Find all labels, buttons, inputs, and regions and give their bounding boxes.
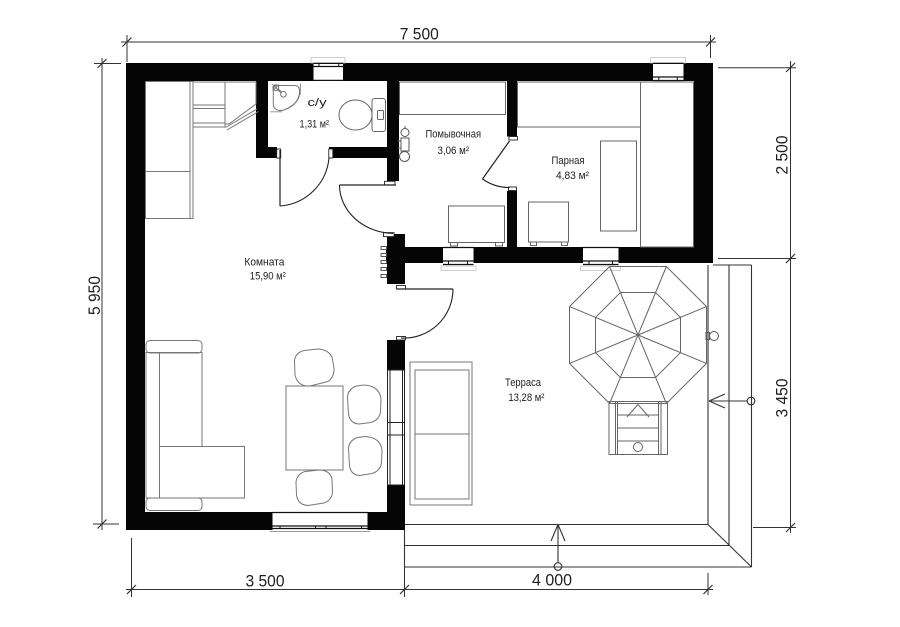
svg-text:3 500: 3 500 <box>246 573 285 591</box>
svg-text:2 500: 2 500 <box>774 136 792 175</box>
svg-text:Помывочная: Помывочная <box>426 129 482 141</box>
svg-text:Парная: Парная <box>552 155 585 167</box>
svg-text:1,31 м²: 1,31 м² <box>300 119 330 131</box>
svg-text:13,28 м²: 13,28 м² <box>508 392 544 404</box>
svg-text:5 950: 5 950 <box>86 276 104 315</box>
svg-text:с/у: с/у <box>308 97 327 109</box>
svg-text:4,83 м²: 4,83 м² <box>556 170 589 182</box>
svg-text:Терраса: Терраса <box>505 377 542 389</box>
svg-text:3,06 м²: 3,06 м² <box>438 145 470 157</box>
svg-text:Комната: Комната <box>244 257 285 269</box>
svg-text:7 500: 7 500 <box>400 26 439 44</box>
svg-text:3 450: 3 450 <box>774 379 792 418</box>
svg-text:4 000: 4 000 <box>532 572 572 590</box>
svg-text:15,90 м²: 15,90 м² <box>250 270 286 282</box>
